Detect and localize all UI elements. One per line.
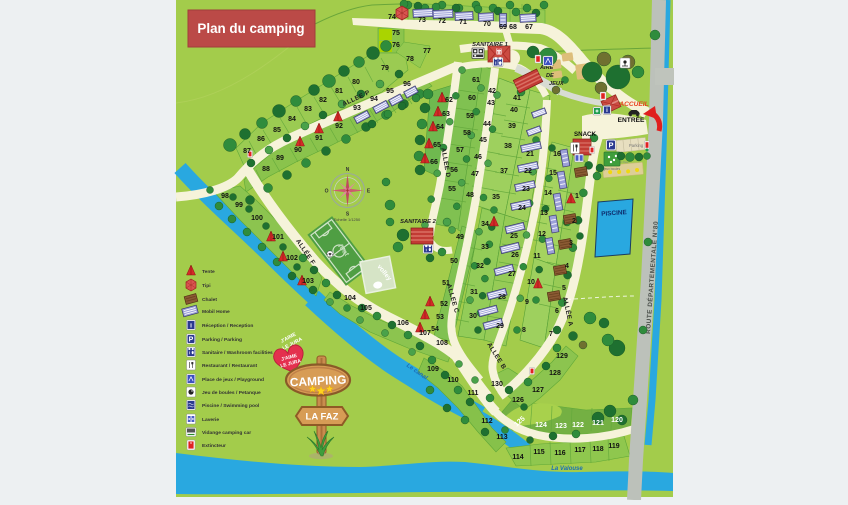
svg-text:112: 112 [481, 418, 492, 425]
svg-text:64: 64 [436, 124, 444, 131]
svg-text:Mobil Home: Mobil Home [202, 309, 230, 315]
svg-text:Jeu de boules / Petanque: Jeu de boules / Petanque [202, 390, 261, 396]
svg-text:Parking: Parking [629, 143, 644, 148]
svg-text:Réception / Reception: Réception / Reception [202, 323, 253, 329]
svg-text:95: 95 [386, 88, 394, 95]
svg-text:LA FAZ: LA FAZ [306, 412, 339, 423]
svg-text:115: 115 [533, 449, 544, 456]
svg-text:57: 57 [456, 147, 464, 154]
svg-text:70: 70 [483, 21, 491, 28]
svg-text:87: 87 [243, 148, 251, 155]
svg-text:102: 102 [286, 255, 298, 262]
svg-text:71: 71 [459, 19, 467, 26]
svg-text:SANITAIRE 2: SANITAIRE 2 [400, 219, 436, 225]
svg-text:114: 114 [512, 454, 523, 461]
svg-text:Laverie: Laverie [202, 417, 219, 423]
svg-text:42: 42 [488, 88, 496, 95]
svg-text:6: 6 [555, 308, 559, 315]
svg-text:SNACK: SNACK [574, 131, 597, 138]
svg-text:110: 110 [447, 377, 458, 384]
svg-text:103: 103 [302, 278, 314, 285]
svg-text:94: 94 [370, 96, 378, 103]
svg-text:92: 92 [335, 123, 343, 130]
svg-text:111: 111 [468, 390, 479, 397]
svg-text:32: 32 [476, 263, 484, 270]
svg-text:DE: DE [546, 73, 554, 79]
svg-text:JEUX: JEUX [549, 81, 565, 87]
svg-text:Piscine / Swimming pool: Piscine / Swimming pool [202, 403, 260, 409]
svg-text:48: 48 [466, 192, 474, 199]
svg-text:91: 91 [315, 135, 323, 142]
svg-text:98: 98 [221, 193, 229, 200]
svg-text:104: 104 [344, 295, 356, 302]
svg-text:106: 106 [397, 320, 409, 327]
svg-text:75: 75 [392, 30, 400, 37]
svg-text:81: 81 [335, 88, 343, 95]
svg-text:117: 117 [574, 447, 585, 454]
svg-text:25: 25 [510, 233, 518, 240]
svg-text:16: 16 [553, 151, 561, 158]
svg-text:54: 54 [431, 326, 439, 333]
svg-text:Echelle 1/1250: Echelle 1/1250 [334, 217, 361, 222]
svg-text:130: 130 [491, 381, 503, 388]
svg-text:86: 86 [257, 136, 265, 143]
svg-text:4: 4 [565, 263, 569, 270]
svg-text:90: 90 [294, 147, 302, 154]
svg-text:P: P [189, 337, 194, 344]
svg-text:107: 107 [419, 330, 431, 337]
svg-text:15: 15 [549, 170, 557, 177]
svg-text:52: 52 [440, 301, 448, 308]
svg-text:88: 88 [262, 166, 270, 173]
svg-text:77: 77 [423, 48, 431, 55]
svg-text:14: 14 [544, 190, 552, 197]
svg-text:38: 38 [504, 143, 512, 150]
svg-text:67: 67 [525, 24, 533, 31]
svg-text:Place de jeux / Playground: Place de jeux / Playground [202, 377, 264, 383]
svg-text:72: 72 [438, 18, 446, 25]
svg-text:101: 101 [272, 234, 284, 241]
svg-text:Plan du camping: Plan du camping [197, 21, 304, 36]
svg-text:93: 93 [353, 105, 361, 112]
svg-text:ENTRÉE: ENTRÉE [618, 115, 645, 124]
svg-text:122: 122 [572, 422, 584, 429]
svg-text:76: 76 [392, 42, 400, 49]
svg-text:68: 68 [509, 24, 517, 31]
svg-text:84: 84 [288, 116, 296, 123]
svg-text:99: 99 [235, 202, 243, 209]
svg-text:40: 40 [510, 107, 518, 114]
svg-text:89: 89 [276, 155, 284, 162]
svg-text:129: 129 [556, 353, 568, 360]
svg-text:123: 123 [555, 423, 567, 430]
svg-text:Vidange camping car: Vidange camping car [202, 430, 251, 436]
svg-text:119: 119 [608, 443, 619, 450]
svg-text:27: 27 [508, 271, 516, 278]
svg-text:61: 61 [472, 77, 480, 84]
svg-text:113: 113 [496, 434, 507, 441]
svg-text:56: 56 [450, 167, 458, 174]
svg-text:53: 53 [436, 314, 444, 321]
svg-text:108: 108 [436, 340, 448, 347]
svg-text:La Valouse: La Valouse [551, 466, 583, 472]
svg-text:127: 127 [532, 387, 544, 394]
svg-text:96: 96 [403, 81, 411, 88]
svg-text:62: 62 [445, 97, 453, 104]
svg-text:121: 121 [592, 420, 604, 427]
svg-text:11: 11 [533, 253, 541, 260]
svg-text:Chalet: Chalet [202, 297, 217, 303]
svg-text:35: 35 [492, 194, 500, 201]
svg-text:63: 63 [442, 111, 450, 118]
svg-text:82: 82 [319, 97, 327, 104]
svg-text:Sanitaire / Washroom facilit: Sanitaire / Washroom facilities [202, 350, 273, 356]
svg-text:120: 120 [611, 417, 623, 424]
svg-text:28: 28 [498, 294, 506, 301]
svg-text:i: i [190, 322, 192, 329]
svg-text:100: 100 [251, 215, 263, 222]
svg-text:26: 26 [511, 252, 519, 259]
svg-text:47: 47 [471, 171, 479, 178]
svg-text:Restaurant / Restaurant: Restaurant / Restaurant [202, 363, 258, 369]
svg-text:8: 8 [522, 327, 526, 334]
svg-text:1: 1 [575, 193, 579, 200]
svg-text:12: 12 [538, 231, 546, 238]
svg-text:Tipi: Tipi [202, 283, 211, 289]
svg-text:69: 69 [499, 24, 507, 31]
svg-text:9: 9 [525, 299, 529, 306]
svg-text:78: 78 [406, 56, 414, 63]
svg-text:30: 30 [469, 313, 477, 320]
svg-text:5: 5 [562, 285, 566, 292]
svg-text:116: 116 [554, 450, 565, 457]
svg-text:85: 85 [273, 127, 281, 134]
svg-text:118: 118 [592, 446, 603, 453]
svg-text:Parking / Parking: Parking / Parking [202, 337, 242, 343]
svg-text:66: 66 [430, 159, 438, 166]
svg-text:37: 37 [500, 168, 508, 175]
svg-text:P: P [608, 141, 613, 150]
svg-text:74: 74 [388, 14, 396, 21]
svg-text:7: 7 [549, 331, 553, 338]
svg-text:jeux boules: jeux boules [603, 167, 621, 171]
svg-text:124: 124 [535, 422, 547, 429]
svg-text:50: 50 [450, 258, 458, 265]
svg-text:80: 80 [352, 79, 360, 86]
svg-text:O: O [325, 189, 329, 195]
svg-text:24: 24 [518, 205, 526, 212]
svg-text:31: 31 [470, 289, 478, 296]
svg-text:79: 79 [381, 65, 389, 72]
svg-text:Tente: Tente [202, 269, 215, 275]
svg-text:128: 128 [549, 370, 561, 377]
svg-text:34: 34 [481, 221, 489, 228]
svg-text:39: 39 [508, 123, 516, 130]
svg-text:ACCUEIL: ACCUEIL [618, 101, 648, 108]
svg-text:83: 83 [304, 106, 312, 113]
svg-text:59: 59 [466, 113, 474, 120]
svg-text:SANITAIRE 1: SANITAIRE 1 [472, 42, 508, 48]
svg-text:41: 41 [513, 95, 521, 102]
svg-text:23: 23 [522, 186, 530, 193]
svg-text:2: 2 [572, 218, 576, 225]
svg-text:60: 60 [468, 95, 476, 102]
svg-text:N: N [346, 167, 350, 173]
svg-text:109: 109 [427, 366, 439, 373]
svg-text:44: 44 [483, 121, 491, 128]
svg-text:49: 49 [456, 234, 464, 241]
svg-text:Extincteur: Extincteur [202, 443, 226, 449]
svg-text:13: 13 [540, 210, 548, 217]
svg-text:105: 105 [360, 305, 372, 312]
svg-text:21: 21 [526, 151, 534, 158]
svg-text:43: 43 [487, 100, 495, 107]
svg-text:29: 29 [496, 323, 504, 330]
svg-text:10: 10 [527, 279, 535, 286]
svg-text:22: 22 [524, 168, 532, 175]
svg-text:73: 73 [418, 17, 426, 24]
svg-text:55: 55 [448, 186, 456, 193]
svg-text:CAMPING: CAMPING [289, 373, 346, 390]
svg-text:33: 33 [481, 244, 489, 251]
svg-text:46: 46 [474, 154, 482, 161]
svg-text:51: 51 [442, 280, 450, 287]
svg-text:45: 45 [479, 137, 487, 144]
svg-text:65: 65 [433, 142, 441, 149]
svg-text:58: 58 [463, 130, 471, 137]
svg-text:3: 3 [569, 240, 573, 247]
svg-text:126: 126 [512, 397, 524, 404]
